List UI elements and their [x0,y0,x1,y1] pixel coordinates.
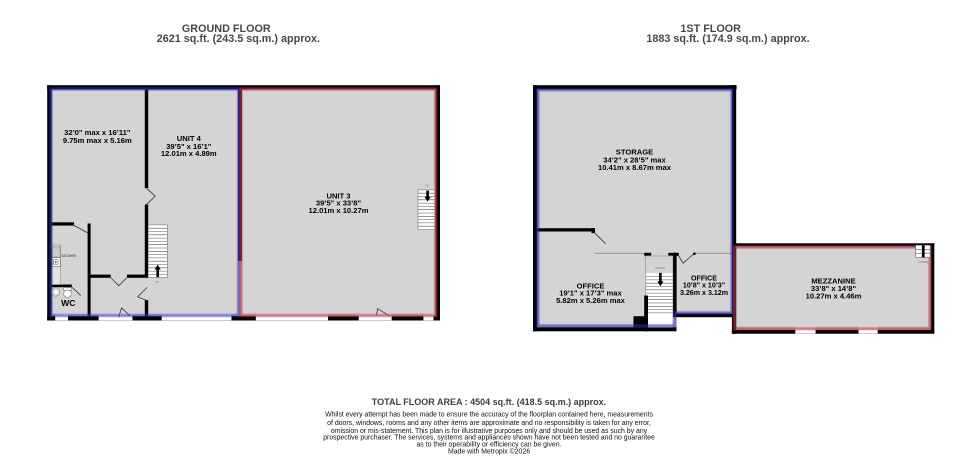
svg-text:prospective purchaser. The ser: prospective purchaser. The services, sys… [323,435,655,442]
svg-text:3.26m x 3.12m: 3.26m x 3.12m [680,289,728,297]
svg-text:of doors, windows, rooms and a: of doors, windows, rooms and any other i… [327,420,651,427]
svg-text:Whilst every attempt has been: Whilst every attempt has been made to en… [325,411,653,418]
svg-text:KITCHEN: KITCHEN [62,254,77,258]
svg-text:Made with Metropix ©2026: Made with Metropix ©2026 [448,447,530,455]
svg-text:WC: WC [61,298,75,308]
svg-text:12.01m x 4.89m: 12.01m x 4.89m [161,149,217,158]
svg-text:9.75m max x 5.16m: 9.75m max x 5.16m [63,136,132,145]
svg-text:1883 sq.ft. (174.9 sq.m.) appr: 1883 sq.ft. (174.9 sq.m.) approx. [646,33,809,45]
svg-text:UP: UP [425,184,429,188]
svg-text:5.82m x 5.26m max: 5.82m x 5.26m max [556,296,626,305]
svg-text:10.41m x 8.67m max: 10.41m x 8.67m max [598,163,672,172]
svg-text:DOWN: DOWN [919,260,929,264]
svg-text:UP: UP [155,280,159,284]
svg-text:10.27m x 4.46m: 10.27m x 4.46m [806,291,862,300]
svg-text:12.01m x 10.27m: 12.01m x 10.27m [309,206,369,215]
svg-text:TOTAL FLOOR AREA : 4504 sq.ft.: TOTAL FLOOR AREA : 4504 sq.ft. (418.5 sq… [372,397,606,407]
svg-text:2621 sq.ft. (243.5 sq.m.) appr: 2621 sq.ft. (243.5 sq.m.) approx. [157,33,320,45]
svg-text:DOWN: DOWN [656,266,666,270]
